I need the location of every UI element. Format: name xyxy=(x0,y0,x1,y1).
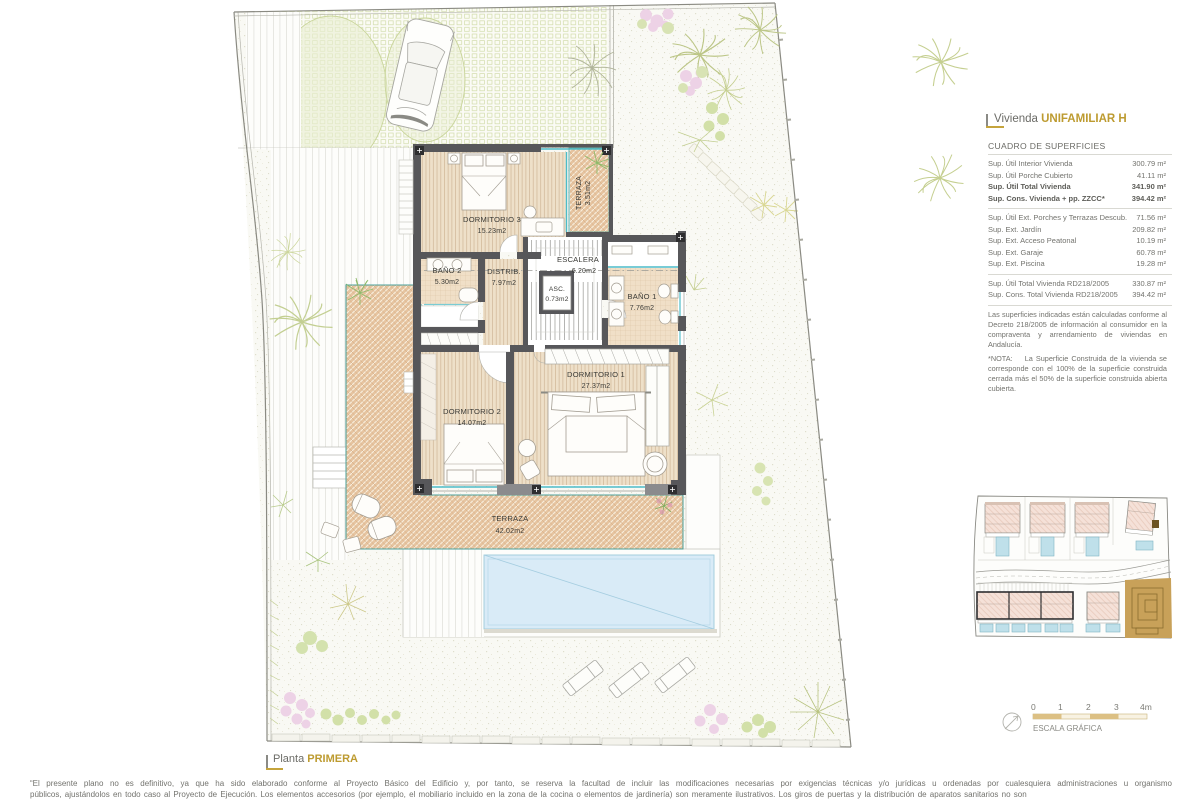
svg-text:0: 0 xyxy=(1031,702,1036,712)
svg-text:BAÑO 2: BAÑO 2 xyxy=(432,266,461,275)
svg-text:7.76m2: 7.76m2 xyxy=(630,305,655,312)
svg-text:4m: 4m xyxy=(1140,702,1152,712)
svg-text:DISTRIB.: DISTRIB. xyxy=(487,267,521,276)
svg-text:DORMITORIO 1: DORMITORIO 1 xyxy=(567,370,625,379)
svg-text:DORMITORIO 3: DORMITORIO 3 xyxy=(463,215,521,224)
svg-text:42.02m2: 42.02m2 xyxy=(496,528,525,535)
svg-text:6.20m2: 6.20m2 xyxy=(572,268,597,275)
svg-text:DORMITORIO 2: DORMITORIO 2 xyxy=(443,407,501,416)
svg-text:3: 3 xyxy=(1114,702,1119,712)
svg-text:0.73m2: 0.73m2 xyxy=(545,296,568,303)
svg-text:7.97m2: 7.97m2 xyxy=(492,280,517,287)
svg-text:TERRAZA: TERRAZA xyxy=(576,176,583,210)
svg-text:ASC.: ASC. xyxy=(549,286,565,293)
svg-text:TERRAZA: TERRAZA xyxy=(492,514,530,523)
svg-text:27.37m2: 27.37m2 xyxy=(582,383,611,390)
svg-text:ESCALERA: ESCALERA xyxy=(557,255,600,264)
svg-text:3.51m2: 3.51m2 xyxy=(585,181,592,206)
svg-text:5.30m2: 5.30m2 xyxy=(435,279,460,286)
svg-text:15.23m2: 15.23m2 xyxy=(478,228,507,235)
svg-text:2: 2 xyxy=(1086,702,1091,712)
svg-text:BAÑO 1: BAÑO 1 xyxy=(627,292,656,301)
svg-text:ESCALA GRÁFICA: ESCALA GRÁFICA xyxy=(1033,724,1103,733)
svg-text:14.07m2: 14.07m2 xyxy=(458,420,487,427)
svg-text:1: 1 xyxy=(1058,702,1063,712)
